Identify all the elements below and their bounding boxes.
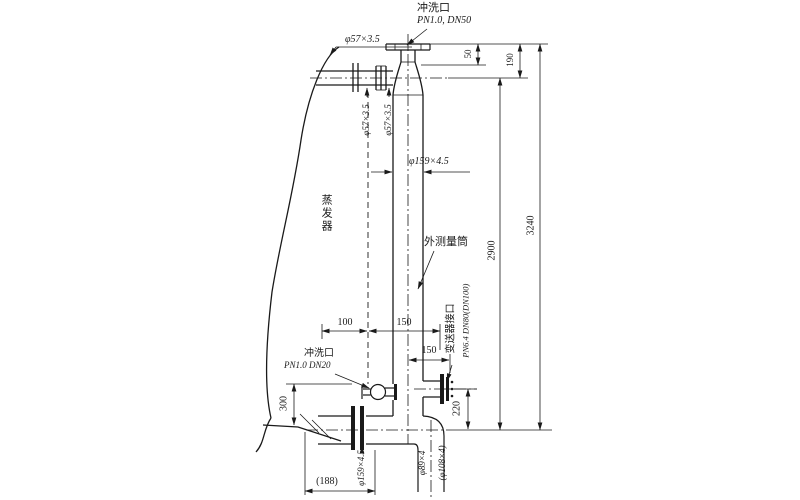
dim-188: (188) (307, 476, 347, 487)
drain-diameter-alt-label: (φ108×4) (438, 428, 448, 498)
evaporator-label: 蒸发器 (320, 194, 332, 233)
top-pipe-diameter-vertical-1: φ57×3.5 (362, 90, 372, 150)
top-connection-pipe (316, 63, 393, 92)
drain-diameter-label: φ89×4 (418, 438, 428, 488)
transmitter-port-label: 变送器接口 (446, 289, 457, 369)
flush-valve (362, 384, 397, 400)
dim-220: 220 (452, 389, 463, 429)
bottom-flush-port-spec: PN1.0 DN20 (284, 361, 331, 371)
dimension-lines (294, 44, 540, 491)
top-flush-port-label: 冲洗口 (417, 2, 450, 14)
dim-3240: 3240 (526, 196, 537, 256)
bottom-flush-port-label: 冲洗口 (304, 348, 334, 359)
dim-190: 190 (506, 40, 516, 80)
dim-100: 100 (330, 317, 360, 328)
bottom-pipe-diameter-label: φ159×4.5 (357, 438, 367, 498)
dim-150-top: 150 (389, 317, 419, 328)
evaporator-outline (256, 47, 341, 452)
top-flush-port-spec: PN1.0, DN50 (417, 15, 471, 26)
top-pipe-diameter-vertical-2: φ57×3.5 (384, 90, 394, 150)
dim-2900: 2900 (487, 221, 498, 281)
drawing-linework (0, 0, 800, 500)
dim-300: 300 (279, 384, 290, 424)
transmitter-port-spec: PN6.4 DN80(DN100) (461, 266, 470, 376)
cylinder-name-label: 外测量筒 (424, 236, 468, 248)
cylinder-diameter-label: φ159×4.5 (409, 156, 449, 167)
extension-lines (286, 44, 552, 495)
dim-150-side: 150 (414, 345, 444, 356)
drawing-canvas: 冲洗口 PN1.0, DN50 φ57×3.5 φ57×3.5 φ57×3.5 … (0, 0, 800, 500)
top-pipe-diameter-label: φ57×3.5 (345, 34, 380, 45)
dim-50: 50 (464, 34, 474, 74)
